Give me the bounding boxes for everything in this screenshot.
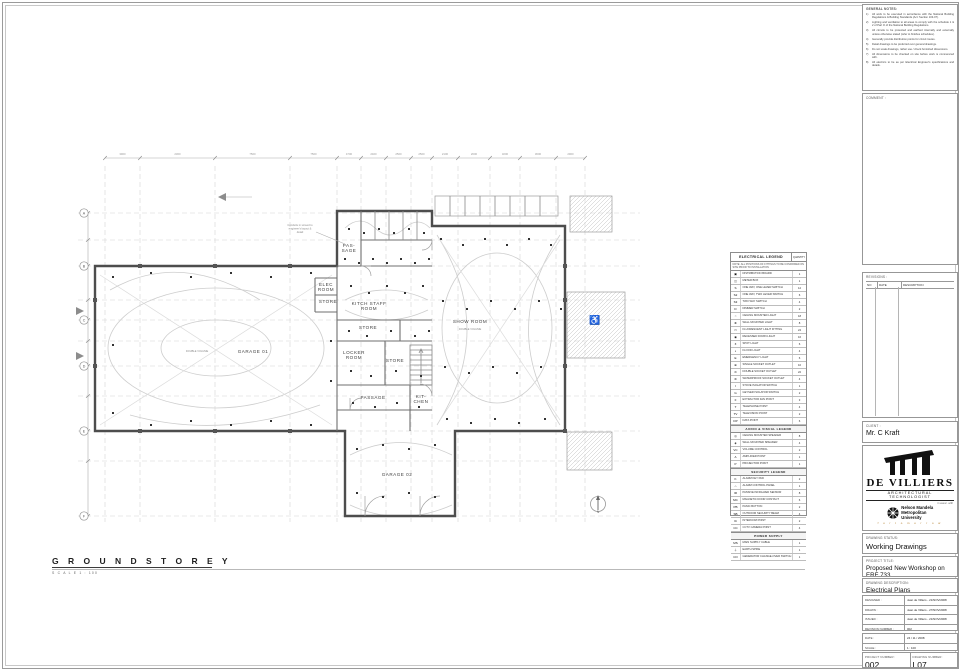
dimension-label: 3900 <box>119 152 126 156</box>
project-number-cell: PROJECT NUMBER: 002 <box>863 653 910 667</box>
general-note-text: All electrics to be as per Electrical En… <box>872 61 954 68</box>
legend-symbol-icon: ▣ <box>731 271 741 277</box>
legend-symbol-icon: MS <box>731 540 741 546</box>
legend-row: ⏚EARTH SPIKE1 <box>731 547 806 554</box>
legend-row: MCMAGNETIC DOOR CONTACT6 <box>731 497 806 504</box>
legend-label: VOLUME CONTROL <box>741 448 792 451</box>
legend-quantity: 4 <box>792 299 806 305</box>
signoff-label: REVISION NUMBER : <box>863 625 905 631</box>
legend-symbol-icon: ◎ <box>731 433 741 439</box>
legend-row: ◎CEILING MOUNTED SPEAKER8 <box>731 433 806 440</box>
signoff-value: Jean de Villiers - 21/NOV/2008 <box>905 598 957 602</box>
date-row: DATE : 24 / 11 / 2008 <box>863 634 957 644</box>
legend-label: CCTV CAMERA POINT <box>741 526 792 529</box>
legend-label: METER BOX <box>741 279 792 282</box>
north-label: N <box>597 510 600 514</box>
legend-label: TELEPHONE POINT <box>741 405 792 408</box>
dimension-label: 3600 <box>535 152 542 156</box>
dimension-labels: 3900230075007500470024002500250021002600… <box>119 152 574 156</box>
legend-label: AMPLIFIER POINT <box>741 455 792 458</box>
plan-title-block: G R O U N D S T O R E Y S C A L E 1 : 10… <box>52 556 805 575</box>
legend-row: KALARM KEY PAD2 <box>731 476 806 483</box>
legend-symbol-icon: E <box>731 355 741 361</box>
legend-row: ◫METER BOX1 <box>731 278 806 285</box>
plan-note: Conduits in screed toengineer's layout &… <box>287 223 313 234</box>
general-note-text: Generally provide distribution points fo… <box>872 38 954 41</box>
legend-symbol-icon: A <box>731 454 741 460</box>
legend-label: CEILING MOUNTED SPEAKER <box>741 434 792 437</box>
firm-logo-panel: DE VILLIERS ARCHITECTURAL TECHNOLOGIST i… <box>862 445 958 531</box>
signoff-row: REVISION NUMBER :002 <box>863 625 957 631</box>
legend-row: EEMERGENCY LIGHT6 <box>731 355 806 362</box>
legend-row: IRPASSIVE INFRA-RED SENSOR8 <box>731 490 806 497</box>
firm-name: DE VILLIERS <box>866 477 954 489</box>
room-label-locker-room: LOCKERROOM <box>343 350 365 360</box>
general-note: 6)Do not scale drawings, rather use / ch… <box>866 48 954 51</box>
dimension-label: 2100 <box>442 152 449 156</box>
legend-quantity: 6 <box>792 292 806 298</box>
scale-label: SCALE : <box>863 644 905 651</box>
legend-row: ⊜DOUBLE SOCKET OUTLET22 <box>731 369 806 376</box>
project-title-label: PROJECT TITLE: <box>866 559 954 563</box>
legend-symbol-icon: S3 <box>731 299 741 305</box>
legend-quantity: 1 <box>792 547 806 553</box>
external-features: ♿ <box>435 196 625 470</box>
legend-symbol-icon: ◈ <box>731 440 741 446</box>
legend-symbol-icon: DP <box>731 418 741 424</box>
legend-note: NOTE: ALL POSITIONS OF FITTINGS TO BE CO… <box>731 262 806 271</box>
general-note-text: Lighting and ventilation to all areas to… <box>872 21 954 28</box>
drawing-number-cell: DRAWING NUMBER: L07 <box>910 653 958 667</box>
legend-label: GEYSER ISOLATOR SWITCH <box>741 391 792 394</box>
legend-label: MAGNETIC DOOR CONTACT <box>741 498 792 501</box>
legend-quantity: 18 <box>792 313 806 319</box>
legend-symbol-icon: PB <box>731 504 741 510</box>
legend-qty-header: QUANTITY <box>791 253 806 261</box>
project-title-value: Proposed New Workshop on ERF 733 <box>866 565 954 578</box>
nmmu-logo-icon <box>887 507 899 519</box>
legend-quantity: 4 <box>792 348 806 354</box>
legend-row: SBOUTDOOR SECURITY BEAM4 <box>731 511 806 518</box>
legend-symbol-icon: SB <box>731 511 741 517</box>
drawing-number-label: DRAWING NUMBER: <box>913 655 956 659</box>
legend-row: TTELEPHONE POINT4 <box>731 404 806 411</box>
legend-row: AAMPLIFIER POINT1 <box>731 454 806 461</box>
legend-quantity: 8 <box>792 433 806 439</box>
legend-symbol-icon: VC <box>731 447 741 453</box>
legend-label: TWO WAY SWITCH <box>741 300 792 303</box>
dimension-label: 2300 <box>174 152 181 156</box>
legend-symbol-icon: T <box>731 404 741 410</box>
legend-symbol-icon: ◉ <box>731 334 741 340</box>
electrical-legend: ELECTRICAL LEGEND QUANTITY NOTE: ALL POS… <box>730 252 807 516</box>
legend-symbol-icon: ▭ <box>731 327 741 333</box>
general-note: 3)All circuits to be protected and earth… <box>866 29 954 36</box>
title-rule <box>52 569 805 570</box>
dimension-label: 7500 <box>249 152 256 156</box>
legend-quantity: 2 <box>792 411 806 417</box>
legend-symbol-icon: TV <box>731 411 741 417</box>
legend-quantity: 8 <box>792 490 806 496</box>
legend-quantity: 4 <box>792 404 806 410</box>
legend-quantity: 2 <box>792 518 806 524</box>
room-label-elec-room: ELECROOM <box>318 282 334 292</box>
legend-row: S2ONE WAY, TWO LEVER SWITCH6 <box>731 292 806 299</box>
legend-title: ELECTRICAL LEGEND <box>731 255 791 259</box>
room-sublabel-show-room: DOUBLE VOLUME <box>459 327 482 331</box>
legend-symbol-icon: IC <box>731 518 741 524</box>
comment-title: COMMENT : <box>866 96 954 100</box>
legend-quantity: 2 <box>792 306 806 312</box>
legend-label: PASSIVE INFRA-RED SENSOR <box>741 491 792 494</box>
firm-subtitle: ARCHITECTURAL TECHNOLOGIST <box>866 490 954 501</box>
legend-row: ▣DISTRIBUTION BOARD1 <box>731 271 806 278</box>
dimension-label: 2600 <box>471 152 478 156</box>
legend-label: MAIN SUPPLY CABLE <box>741 541 792 544</box>
legend-quantity: 1 <box>792 383 806 389</box>
legend-symbol-icon: K <box>731 476 741 482</box>
legend-row: PBPANIC BUTTON2 <box>731 504 806 511</box>
date-value: 24 / 11 / 2008 <box>905 636 957 640</box>
drawing-sheet: 3900230075007500470024002500250021002600… <box>0 0 961 671</box>
legend-label: FLOOD LIGHT <box>741 349 792 352</box>
general-note: 7)All dimensions to be checked on site b… <box>866 53 954 60</box>
legend-quantity: 3 <box>792 397 806 403</box>
room-label-passage: PASSAGE <box>360 395 385 400</box>
general-note-text: Detail drawings to be preferred over gen… <box>872 43 954 46</box>
north-arrow: N <box>591 495 606 514</box>
dimension-label: 2900 <box>567 152 574 156</box>
date-label: DATE : <box>863 634 905 643</box>
legend-row: ◐FLOOD LIGHT4 <box>731 348 806 355</box>
legend-symbol-icon: ⊛ <box>731 376 741 382</box>
revisions-header-row: NO DATE DESCRIPTION <box>866 281 954 289</box>
general-notes-list: 1)All work to be executed in accordance … <box>866 13 954 68</box>
legend-label: DATA POINT <box>741 419 792 422</box>
drawing-status-value: Working Drawings <box>866 542 954 551</box>
legend-row: COGENERATOR CHANGE-OVER SWITCH1 <box>731 554 806 561</box>
grid-bubbles: ABCDEF <box>80 209 88 520</box>
scale-row: SCALE : 1 : 100 <box>863 644 957 651</box>
drawing-description-value: Electrical Plans <box>866 587 954 594</box>
room-label-garage-01: GARAGE 01 <box>238 349 269 354</box>
date-scale-panel: DATE : 24 / 11 / 2008 SCALE : 1 : 100 <box>862 633 958 651</box>
legend-quantity: 2 <box>792 476 806 482</box>
drawing-status-panel: DRAWING STATUS: Working Drawings <box>862 533 958 554</box>
dimension-label: 2500 <box>418 152 425 156</box>
legend-label: GENERATOR CHANGE-OVER SWITCH <box>741 555 792 558</box>
project-title-panel: PROJECT TITLE: Proposed New Workshop on … <box>862 556 958 577</box>
room-label-store-3: STORE <box>386 358 404 363</box>
legend-label: PROJECTOR POINT <box>741 462 792 465</box>
legend-label: DOUBLE SOCKET OUTLET <box>741 370 792 373</box>
legend-body: ▣DISTRIBUTION BOARD1◫METER BOX1SONE WAY,… <box>731 271 806 561</box>
room-sublabel-garage-01: DOUBLE VOLUME <box>186 349 209 353</box>
nmmu-block: Nelson Mandela Metropolitan University <box>866 506 954 520</box>
legend-quantity: 4 <box>792 525 806 531</box>
revisions-col-description: DESCRIPTION <box>902 283 954 287</box>
legend-quantity: 1 <box>792 461 806 467</box>
title-underline <box>52 567 212 568</box>
legend-symbol-icon: P <box>731 461 741 467</box>
legend-row: GGEYSER ISOLATOR SWITCH2 <box>731 390 806 397</box>
legend-label: PANIC BUTTON <box>741 505 792 508</box>
legend-symbol-icon: ⌂ <box>731 483 741 489</box>
room-label-garage-02: GARAGE 02 <box>382 472 413 477</box>
legend-header: ELECTRICAL LEGEND QUANTITY <box>731 253 806 262</box>
general-note-text: All circuits to be protected and earthed… <box>872 29 954 36</box>
legend-label: EMERGENCY LIGHT <box>741 356 792 359</box>
grid-lines <box>78 166 640 522</box>
legend-label: STOVE ISOLATOR SWITCH <box>741 384 792 387</box>
legend-quantity: 16 <box>792 334 806 340</box>
signoff-value: Jean de Villiers - 21/NOV/2008 <box>905 617 957 621</box>
legend-quantity: 4 <box>792 511 806 517</box>
legend-row: MSMAIN SUPPLY CABLE1 <box>731 540 806 547</box>
legend-symbol-icon: ○ <box>731 313 741 319</box>
legend-label: ALARM CONTROL PANEL <box>741 484 792 487</box>
general-notes-title: GENERAL NOTES: <box>866 7 954 11</box>
legend-row: ⊗WALL MOUNTED LIGHT8 <box>731 320 806 327</box>
legend-row: FEXTRACTOR FAN POINT3 <box>731 397 806 404</box>
legend-row: ◉RECESSED DOWN LIGHT16 <box>731 334 806 341</box>
legend-symbol-icon: D <box>731 306 741 312</box>
de-villiers-logo-icon <box>882 448 938 476</box>
legend-symbol-icon: ◐ <box>731 348 741 354</box>
legend-row: DPDATA POINT6 <box>731 418 806 425</box>
legend-section-header: SECURITY LEGEND <box>731 468 806 476</box>
general-note: 5)Detail drawings to be preferred over g… <box>866 43 954 46</box>
legend-label: WALL MOUNTED LIGHT <box>741 321 792 324</box>
legend-row: TVTELEVISION POINT2 <box>731 411 806 418</box>
legend-row: ◈WALL MOUNTED SPEAKER4 <box>731 440 806 447</box>
walls <box>95 211 565 516</box>
legend-symbol-icon: ⊕ <box>731 362 741 368</box>
revisions-title: REVISIONS : <box>866 275 954 279</box>
legend-label: SINGLE SOCKET OUTLET <box>741 363 792 366</box>
signoff-value: 002 <box>905 627 957 631</box>
legend-section-header: AUDIO & VISUAL LEGEND <box>731 425 806 433</box>
legend-label: FLUORESCENT LIGHT FITTING <box>741 328 792 331</box>
legend-quantity: 6 <box>792 497 806 503</box>
signoff-row: DRAWN :Jean de Villiers - 27/NOV/2008 <box>863 606 957 616</box>
dimension-label: 2500 <box>395 152 402 156</box>
legend-symbol-icon: ⏚ <box>731 547 741 553</box>
legend-label: ONE WAY, ONE LEVER SWITCH <box>741 286 792 289</box>
general-note-text: All work to be executed in accordance wi… <box>872 13 954 20</box>
general-note: 1)All work to be executed in accordance … <box>866 13 954 20</box>
legend-label: WALL MOUNTED SPEAKER <box>741 441 792 444</box>
room-label-kitch-staff-room: KITCH STAFFROOM <box>352 301 387 311</box>
room-label-store-1: STORE <box>319 299 337 304</box>
legend-row: ▭FLUORESCENT LIGHT FITTING24 <box>731 327 806 334</box>
legend-label: ONE WAY, TWO LEVER SWITCH <box>741 293 792 296</box>
legend-label: SPOT LIGHT <box>741 342 792 345</box>
legend-quantity: 6 <box>792 418 806 424</box>
general-note-text: Do not scale drawings, rather use / chec… <box>872 48 954 51</box>
legend-quantity: 6 <box>792 355 806 361</box>
signoff-row: ISSUED :Jean de Villiers - 21/NOV/2008 <box>863 615 957 625</box>
room-label-passage-upper: PAS-SAGE <box>342 243 357 253</box>
legend-quantity: 2 <box>792 390 806 396</box>
general-note: 2)Lighting and ventilation to all areas … <box>866 21 954 28</box>
project-number-label: PROJECT NUMBER: <box>865 655 908 659</box>
scale-value: 1 : 100 <box>905 646 957 650</box>
legend-row: SONE WAY, ONE LEVER SWITCH12 <box>731 285 806 292</box>
general-note-text: All dimensions to be checked on site bef… <box>872 53 954 60</box>
general-note: 4)Generally provide distribution points … <box>866 38 954 41</box>
client-panel: CLIENT : Mr. C Kraft <box>862 421 958 443</box>
legend-quantity: 1 <box>792 483 806 489</box>
legend-quantity: 6 <box>792 341 806 347</box>
legend-symbol-icon: CO <box>731 554 741 560</box>
legend-label: TELEVISION POINT <box>741 412 792 415</box>
legend-label: ALARM KEY PAD <box>741 477 792 480</box>
dimension-label: 3200 <box>502 152 509 156</box>
dimension-label: 7500 <box>310 152 317 156</box>
signoff-label: DRAWN : <box>863 606 905 615</box>
grid-bubble-label: D <box>83 364 86 368</box>
legend-row: ⊛WATERPROOF SOCKET OUTLET4 <box>731 376 806 383</box>
plan-note-line: engineer's layout & <box>289 226 312 230</box>
legend-row: ✶SPOT LIGHT6 <box>731 341 806 348</box>
legend-row: VCVOLUME CONTROL2 <box>731 447 806 454</box>
client-name: Mr. C Kraft <box>866 430 954 437</box>
legend-quantity: 8 <box>792 320 806 326</box>
legend-symbol-icon: ⊗ <box>731 320 741 326</box>
legend-row: ⊕SINGLE SOCKET OUTLET10 <box>731 362 806 369</box>
legend-label: EXTRACTOR FAN POINT <box>741 398 792 401</box>
legend-row: ISTOVE ISOLATOR SWITCH1 <box>731 383 806 390</box>
legend-quantity: 1 <box>792 554 806 560</box>
dimension-label: 4700 <box>346 152 353 156</box>
legend-symbol-icon: ◫ <box>731 278 741 284</box>
drawing-status-label: DRAWING STATUS: <box>866 536 954 540</box>
comment-panel: COMMENT : <box>862 93 958 265</box>
legend-label: CEILING MOUNTED LIGHT <box>741 314 792 317</box>
nmmu-tagline: f o r t o m o r r o w <box>866 521 954 525</box>
signoff-label: DESIGNED : <box>863 596 905 605</box>
general-notes-panel: GENERAL NOTES: 1)All work to be executed… <box>862 4 958 91</box>
legend-quantity: 24 <box>792 327 806 333</box>
legend-symbol-icon: I <box>731 383 741 389</box>
legend-symbol-icon: ⊜ <box>731 369 741 375</box>
legend-quantity: 12 <box>792 285 806 291</box>
drawing-description-panel: DRAWING DESCRIPTION: Electrical Plans <box>862 578 958 593</box>
legend-section-header: POWER SUPPLY <box>731 532 806 540</box>
legend-row: ⌂ALARM CONTROL PANEL1 <box>731 483 806 490</box>
plan-title: G R O U N D S T O R E Y <box>52 556 805 566</box>
legend-label: DISTRIBUTION BOARD <box>741 272 792 275</box>
legend-quantity: 22 <box>792 369 806 375</box>
legend-quantity: 1 <box>792 271 806 277</box>
legend-row: PPROJECTOR POINT1 <box>731 461 806 468</box>
legend-label: OUTDOOR SECURITY BEAM <box>741 512 792 515</box>
legend-quantity: 4 <box>792 440 806 446</box>
numbers-panel: PROJECT NUMBER: 002 DRAWING NUMBER: L07 <box>862 652 958 668</box>
legend-quantity: 4 <box>792 376 806 382</box>
plan-note-line: Conduits in screed to <box>287 223 313 227</box>
legend-quantity: 1 <box>792 454 806 460</box>
plan-note-line: detail <box>297 230 304 234</box>
legend-label: EARTH SPIKE <box>741 548 792 551</box>
drawing-number-value: L07 <box>913 660 956 669</box>
legend-row: ○CEILING MOUNTED LIGHT18 <box>731 313 806 320</box>
general-note: 8)All electrics to be as per Electrical … <box>866 61 954 68</box>
legend-symbol-icon: G <box>731 390 741 396</box>
signoff-table: DESIGNED :Jean de Villiers - 21/NOV/2008… <box>862 595 958 631</box>
legend-label: INTERCOM POINT <box>741 519 792 522</box>
legend-symbol-icon: CC <box>731 525 741 531</box>
legend-quantity: 2 <box>792 504 806 510</box>
legend-symbol-icon: ✶ <box>731 341 741 347</box>
legend-row: CCCCTV CAMERA POINT4 <box>731 525 806 532</box>
project-number-value: 002 <box>865 660 908 669</box>
dimension-label: 2400 <box>370 152 377 156</box>
legend-label: WATERPROOF SOCKET OUTLET <box>741 377 792 380</box>
drawing-description-label: DRAWING DESCRIPTION: <box>866 581 954 585</box>
legend-label: RECESSED DOWN LIGHT <box>741 335 792 338</box>
legend-symbol-icon: S2 <box>731 292 741 298</box>
legend-quantity: 10 <box>792 362 806 368</box>
legend-row: ICINTERCOM POINT2 <box>731 518 806 525</box>
legend-label: DIMMER SWITCH <box>741 307 792 310</box>
legend-symbol-icon: MC <box>731 497 741 503</box>
plan-scale: S C A L E 1 : 100 <box>52 571 805 575</box>
client-label: CLIENT : <box>866 424 954 428</box>
revisions-vline <box>898 287 899 416</box>
legend-row: DDIMMER SWITCH2 <box>731 306 806 313</box>
legend-symbol-icon: F <box>731 397 741 403</box>
signoff-value: Jean de Villiers - 27/NOV/2008 <box>905 608 957 612</box>
revisions-vline <box>875 287 876 416</box>
room-label-kitchen: KIT-CHEN <box>413 394 428 404</box>
signoff-label: ISSUED : <box>863 615 905 624</box>
room-label-store-2: STORE <box>359 325 377 330</box>
legend-symbol-icon: S <box>731 285 741 291</box>
legend-symbol-icon: IR <box>731 490 741 496</box>
grid-bubble-label: C <box>83 318 86 322</box>
disabled-parking-icon: ♿ <box>589 314 600 325</box>
nmmu-line3: University <box>901 516 933 521</box>
signoff-row: DESIGNED :Jean de Villiers - 21/NOV/2008 <box>863 596 957 606</box>
revisions-panel: REVISIONS : NO DATE DESCRIPTION <box>862 272 958 418</box>
legend-row: S3TWO WAY SWITCH4 <box>731 299 806 306</box>
room-label-show-room: SHOW ROOM <box>453 319 487 324</box>
revisions-col-no: NO <box>866 282 878 288</box>
note-leader-line <box>316 232 345 244</box>
legend-quantity: 1 <box>792 540 806 546</box>
legend-quantity: 1 <box>792 278 806 284</box>
legend-quantity: 2 <box>792 447 806 453</box>
